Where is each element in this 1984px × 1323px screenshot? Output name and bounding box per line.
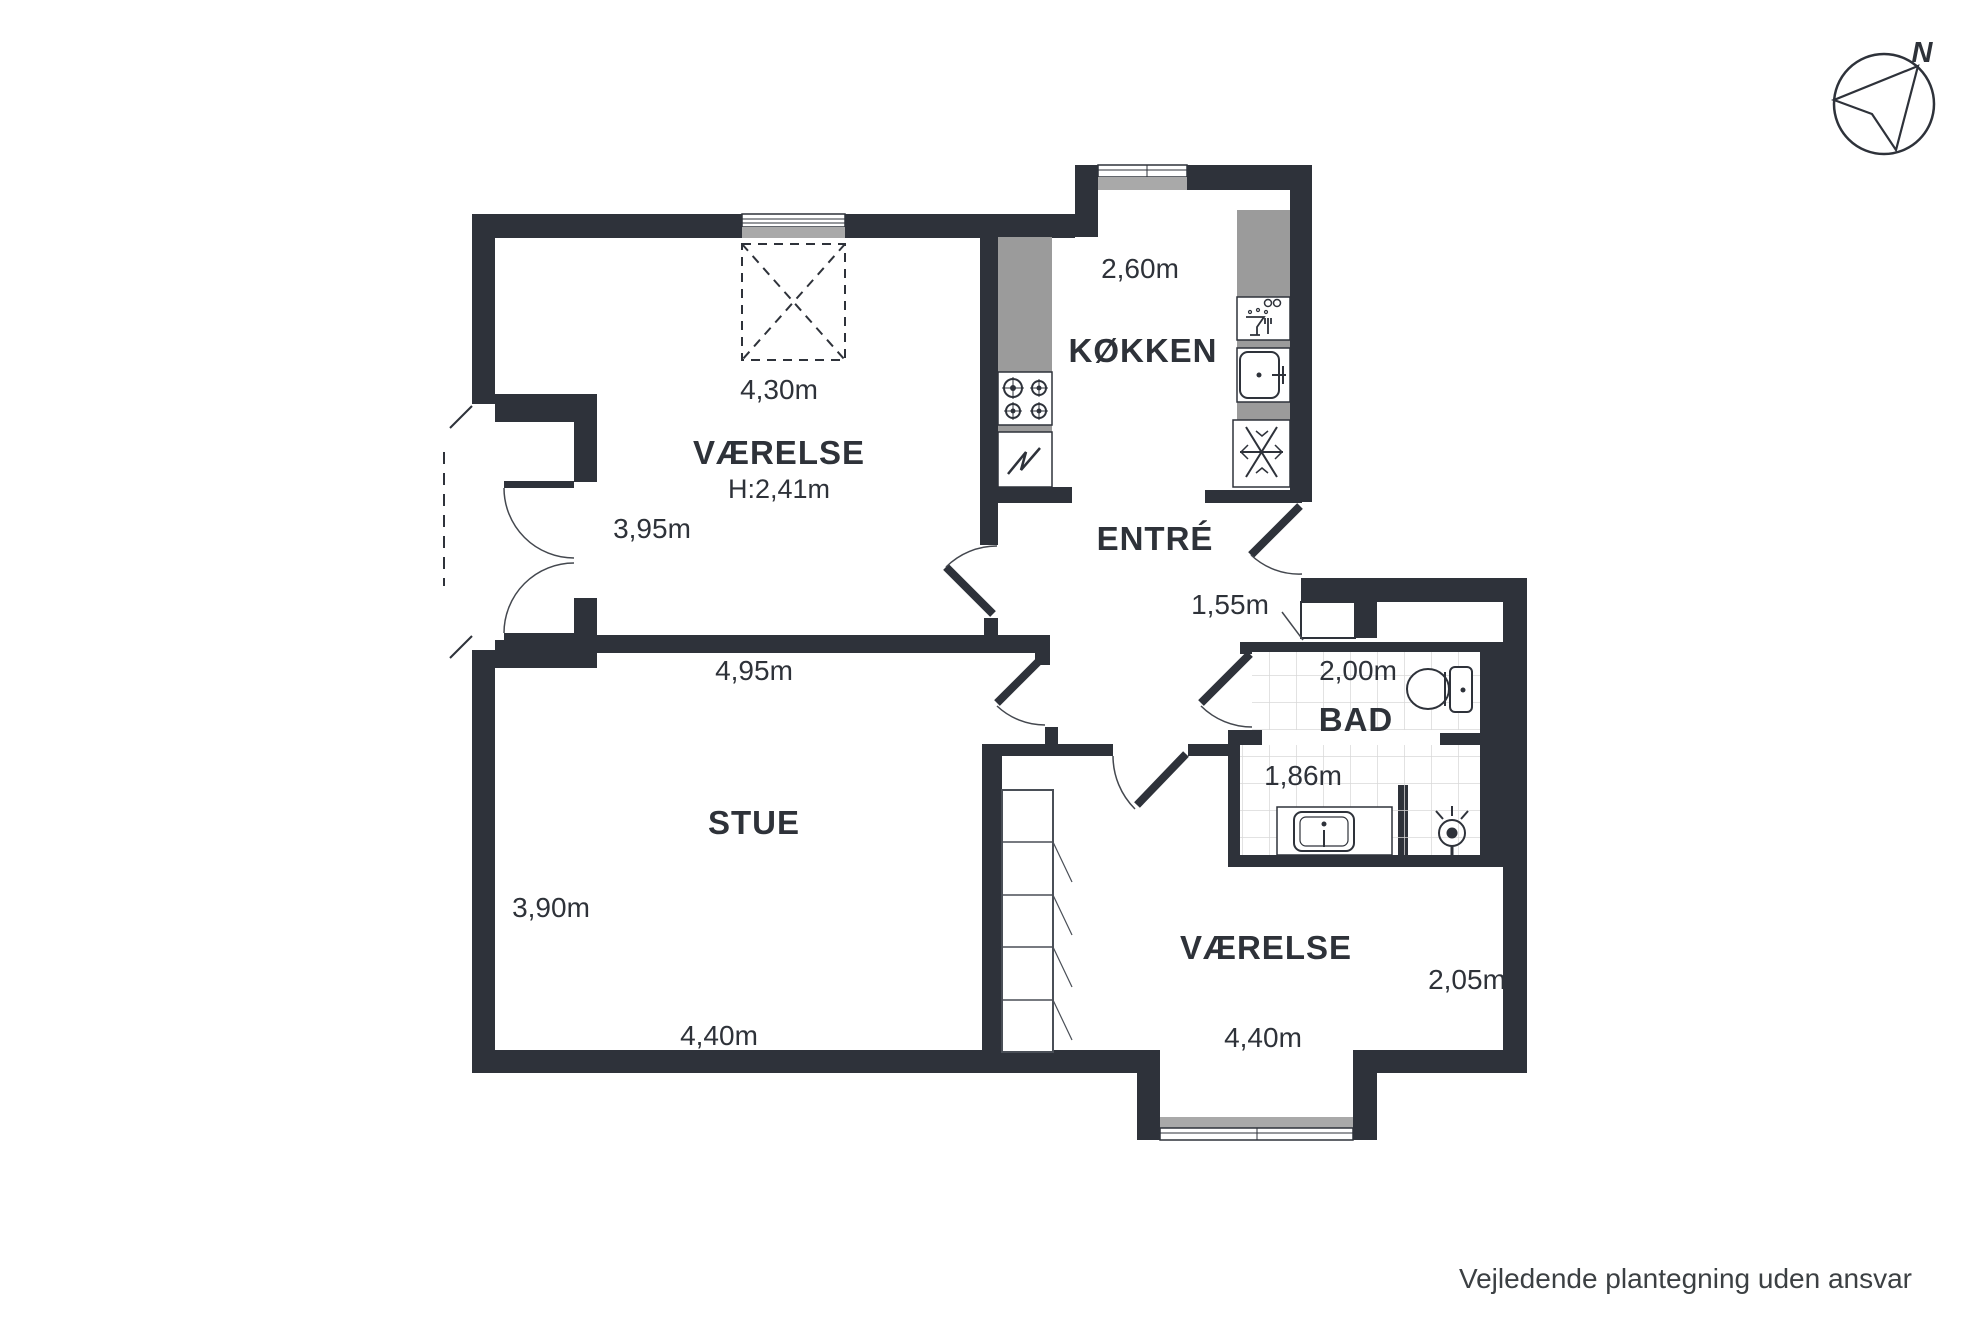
freezer-icon <box>1233 420 1290 487</box>
dimension-bedroom-bottom-width: 4,40m <box>1224 1022 1302 1053</box>
compass-north-label: N <box>1912 37 1934 69</box>
dimension-bathroom-bottom: 1,86m <box>1264 760 1342 791</box>
floor-plan-page: N 4,30m VÆRELSE H:2,41m 3,95m 2,60m KØKK… <box>0 0 1984 1323</box>
toilet-icon <box>1407 667 1472 712</box>
door-bedroom-top <box>946 546 997 614</box>
dimension-kitchen-width: 2,60m <box>1101 253 1179 284</box>
dimension-bedroom-bottom-right: 2,05m <box>1428 964 1506 995</box>
room-label-bathroom: BAD <box>1319 701 1394 738</box>
dimension-bathroom-top: 2,00m <box>1319 655 1397 686</box>
window-kitchen <box>1098 165 1187 190</box>
duct-shaft <box>1301 602 1355 638</box>
room-label-kitchen: KØKKEN <box>1068 332 1217 369</box>
sink-icon <box>1237 348 1290 402</box>
french-balcony-door <box>444 406 574 658</box>
disclaimer-text: Vejledende plantegning uden ansvar <box>1459 1263 1912 1294</box>
dishwasher-icon <box>1237 297 1290 340</box>
dimension-bedroom-top-left: 3,95m <box>613 513 691 544</box>
oven-icon <box>998 432 1052 487</box>
dimension-living-room-top: 4,95m <box>715 655 793 686</box>
floor-plan-svg: N 4,30m VÆRELSE H:2,41m 3,95m 2,60m KØKK… <box>0 0 1984 1323</box>
closet-icon <box>1002 790 1072 1052</box>
window-bedroom-top <box>742 214 845 238</box>
dimension-living-room-bottom: 4,40m <box>680 1020 758 1051</box>
dimension-bedroom-top-width: 4,30m <box>740 374 818 405</box>
stove-icon <box>998 372 1052 425</box>
door-bathroom <box>1201 654 1252 727</box>
room-label-living-room: STUE <box>708 804 800 841</box>
compass-icon: N <box>1834 37 1934 154</box>
door-living-room <box>997 658 1045 725</box>
vanity-sink-icon <box>1277 807 1392 855</box>
ceiling-height-bedroom-top: H:2,41m <box>728 474 830 504</box>
door-entrance <box>1251 506 1302 574</box>
room-label-hall: ENTRÉ <box>1097 520 1214 557</box>
room-label-bedroom-top: VÆRELSE <box>693 434 865 471</box>
window-bay-bedroom-bottom <box>1160 1117 1353 1140</box>
dimension-leader-line <box>1282 612 1303 640</box>
dimension-living-room-left: 3,90m <box>512 892 590 923</box>
room-label-bedroom-bottom: VÆRELSE <box>1180 929 1352 966</box>
skylight-icon <box>742 244 845 360</box>
door-bedroom-bottom <box>1113 754 1186 809</box>
dimension-hall-width: 1,55m <box>1191 589 1269 620</box>
